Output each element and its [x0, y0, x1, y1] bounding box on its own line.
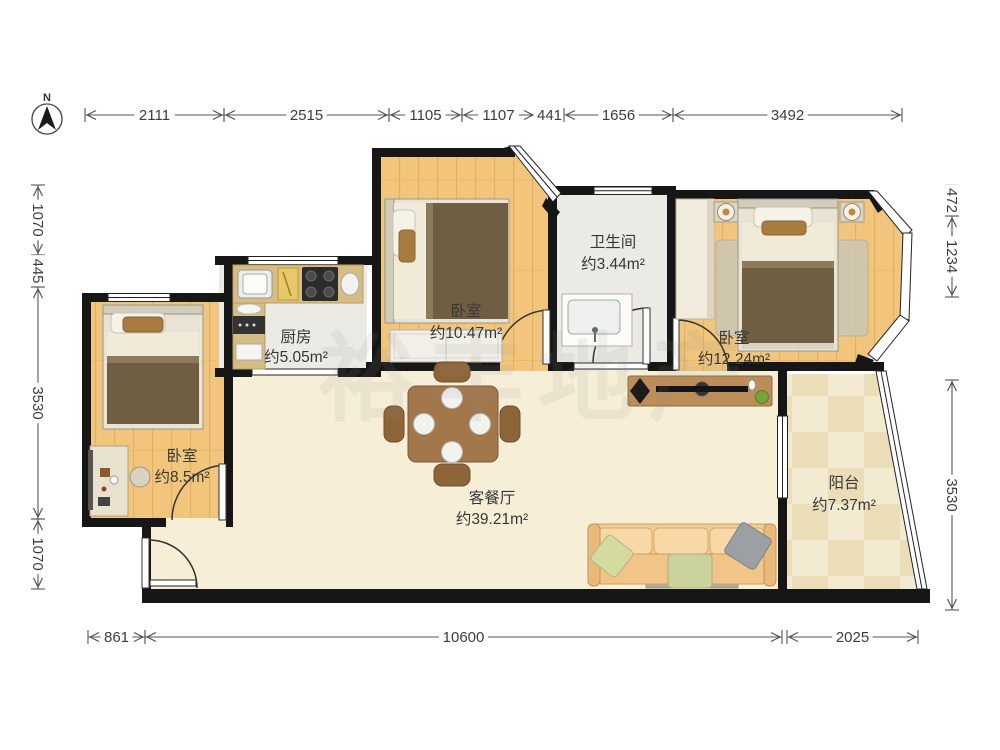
- dimension-left-3: 1070: [29, 519, 47, 589]
- dimension-right-0: 472: [943, 185, 961, 217]
- floor-plan: 裕丰地产 厨房 约5.05m² 卧室 约10.47m² 卫生间 约3.44m² …: [0, 0, 1000, 750]
- microwave-icon: [233, 316, 265, 334]
- room-area-balcony: 约7.37m²: [812, 496, 876, 514]
- dimension-label: 1234: [943, 240, 960, 273]
- dimension-label: 1107: [482, 107, 514, 124]
- dimension-label: 1105: [409, 107, 441, 124]
- dimension-label: 3530: [29, 386, 46, 419]
- room-area-living: 约39.21m²: [456, 510, 528, 528]
- dimension-label: 3530: [943, 478, 960, 511]
- dimension-left-2: 3530: [29, 287, 47, 519]
- dimension-right-2: 3530: [943, 380, 961, 610]
- dimension-label: 1070: [29, 203, 46, 236]
- dimension-bottom-1: 10600: [145, 629, 782, 647]
- dimension-label: 3492: [771, 107, 804, 124]
- dimension-top-6: 3492: [673, 107, 902, 125]
- dimension-top-0: 2111: [85, 107, 224, 125]
- floor-plan-canvas: 裕丰地产 厨房 约5.05m² 卧室 约10.47m² 卫生间 约3.44m² …: [0, 0, 1000, 750]
- room-label-balcony: 阳台: [828, 474, 859, 492]
- sofa-icon: [588, 521, 776, 588]
- entry-threshold: [150, 580, 196, 586]
- dimension-bottom-0: 861: [88, 629, 145, 647]
- bed-icon-left: [103, 305, 203, 429]
- room-area-bedroom-left: 约8.5m²: [154, 468, 209, 486]
- dimension-top-4: 441: [534, 107, 566, 125]
- dimension-label: 1656: [602, 107, 635, 124]
- ottoman-icon: [668, 554, 712, 588]
- bed-icon-middle: [385, 199, 509, 323]
- north-label: N: [43, 92, 51, 104]
- stool-icon: [130, 467, 150, 487]
- room-label-living: 客餐厅: [469, 489, 516, 507]
- room-area-bedroom-right: 约12.24m²: [698, 350, 770, 368]
- dimension-top-5: 1656: [564, 107, 673, 125]
- dimension-label: 2515: [290, 107, 323, 124]
- dimension-label: 861: [104, 629, 129, 646]
- watermark: 裕丰地产: [318, 326, 758, 433]
- compass: N: [32, 92, 62, 134]
- room-label-bedroom-middle: 卧室: [450, 302, 481, 320]
- dimension-label: 441: [537, 107, 562, 124]
- dimension-right-1: 1234: [943, 216, 961, 297]
- dimension-top-1: 2515: [224, 107, 389, 125]
- dimension-left-1: 445: [29, 255, 47, 287]
- room-area-bathroom: 约3.44m²: [581, 255, 645, 273]
- nightstand-icon-left: [714, 202, 738, 222]
- dimension-top-3: 1107: [462, 107, 535, 125]
- room-area-bedroom-middle: 约10.47m²: [430, 324, 502, 342]
- cutting-board-icon: [278, 268, 298, 300]
- wardrobe-icon-right: [676, 199, 714, 319]
- dimension-bottom-2: 2025: [787, 629, 918, 647]
- dimension-label: 10600: [443, 629, 485, 646]
- dimension-left-0: 1070: [29, 185, 47, 255]
- dimension-top-2: 1105: [389, 107, 462, 125]
- nightstand-icon-right: [840, 202, 864, 222]
- room-label-bathroom: 卫生间: [590, 233, 637, 251]
- dimension-label: 2025: [836, 629, 869, 646]
- room-label-bedroom-right: 卧室: [718, 329, 749, 347]
- bowl-icon: [341, 273, 359, 295]
- room-label-kitchen: 厨房: [280, 328, 311, 346]
- dimension-label: 472: [943, 188, 960, 213]
- dimension-label: 445: [29, 258, 46, 283]
- dimension-label: 2111: [139, 107, 170, 124]
- room-area-kitchen: 约5.05m²: [264, 348, 328, 366]
- room-label-bedroom-left: 卧室: [166, 447, 197, 465]
- dimension-label: 1070: [29, 537, 46, 570]
